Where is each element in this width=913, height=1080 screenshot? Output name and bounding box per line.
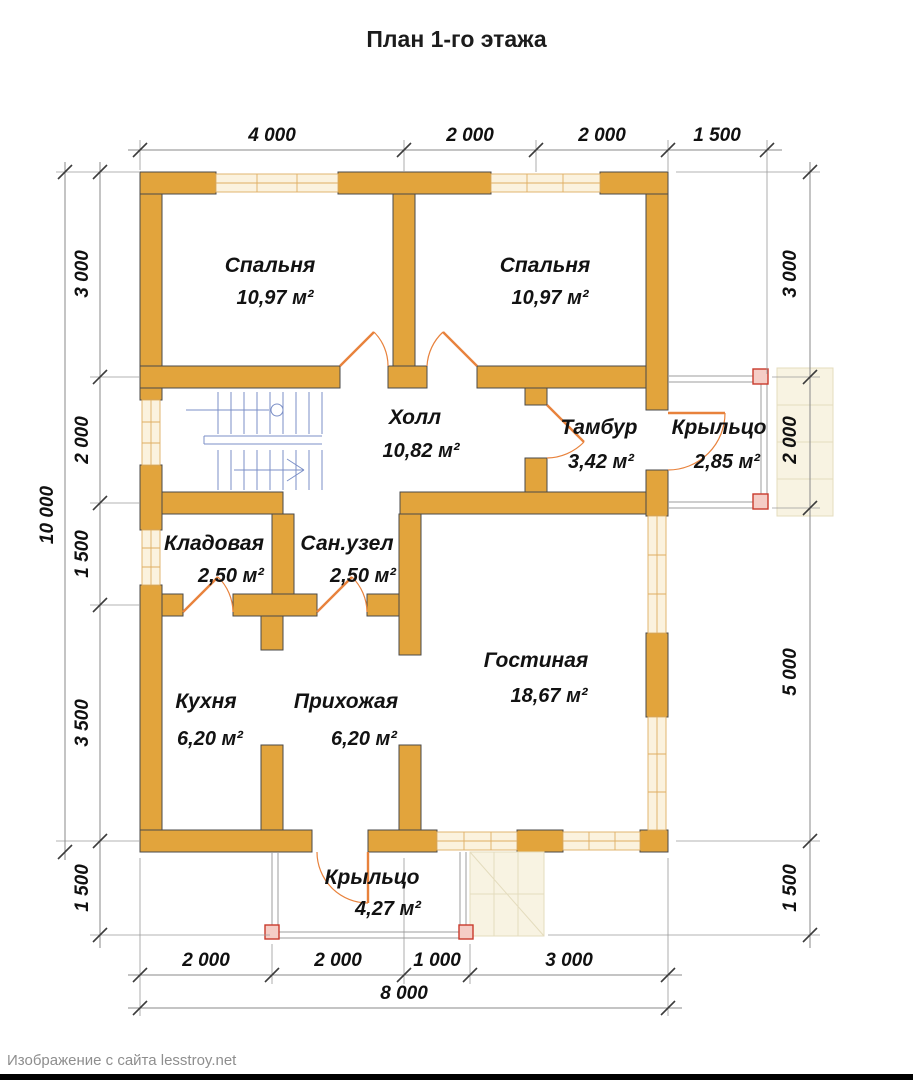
porch-post: [753, 494, 768, 509]
dimensions-right: 3 000 2 000 5 000 1 500: [548, 162, 820, 948]
room-label-hall: Холл 10,82 м²: [382, 406, 460, 462]
room-label-storage: Кладовая 2,50 м²: [164, 532, 265, 587]
wall-segment: [368, 830, 437, 852]
wall-segment: [646, 194, 668, 410]
wall-segment: [399, 514, 421, 655]
room-label-entry: Прихожая 6,20 м²: [294, 690, 398, 750]
window: [563, 832, 640, 850]
dim-label: 1 500: [780, 864, 801, 912]
room-name: Спальня: [225, 254, 316, 277]
porch-post: [753, 369, 768, 384]
window: [491, 174, 600, 192]
dim-label: 3 000: [545, 950, 593, 971]
dim-label: 1 500: [72, 530, 93, 578]
room-label-bedroom-left: Спальня 10,97 м²: [225, 254, 316, 309]
room-area: 6,20 м²: [331, 728, 398, 750]
dim-label-total: 8 000: [380, 983, 428, 1004]
room-area: 2,50 м²: [197, 565, 265, 587]
window: [437, 832, 517, 850]
wall-segment: [600, 172, 668, 194]
wall-segment: [400, 492, 646, 514]
room-area: 4,27 м²: [354, 898, 422, 920]
dim-label: 2 000: [72, 416, 93, 465]
dim-label: 1 500: [72, 864, 93, 912]
floor-plan-drawing: 4 000 2 000 2 000 1 500 3 000 2 000 1 50…: [0, 0, 913, 1080]
room-label-kitchen: Кухня 6,20 м²: [175, 690, 244, 750]
wall-segment: [477, 366, 646, 388]
dim-label-total: 10 000: [37, 486, 58, 545]
wall-segment: [162, 594, 183, 616]
wall-segment: [517, 830, 563, 852]
window: [216, 174, 338, 192]
dim-label: 3 000: [780, 250, 801, 298]
wall-segment: [646, 633, 668, 717]
porch-post: [459, 925, 473, 939]
room-name: Тамбур: [560, 416, 637, 439]
wall-segment: [399, 745, 421, 830]
room-name: Кухня: [175, 690, 236, 713]
wall-segment: [261, 616, 283, 650]
stairs-icon: [186, 392, 322, 490]
wall-segment: [640, 830, 668, 852]
wall-segment: [261, 745, 283, 830]
room-name: Крыльцо: [672, 416, 767, 439]
room-label-porch-bottom: Крыльцо 4,27 м²: [325, 866, 423, 920]
room-name: Холл: [388, 406, 441, 429]
room-name: Прихожая: [294, 690, 398, 713]
wall-segment: [393, 194, 415, 366]
dim-label: 4 000: [247, 125, 296, 146]
dim-label: 2 000: [313, 950, 362, 971]
dim-label: 2 000: [181, 950, 230, 971]
room-area: 10,82 м²: [382, 440, 460, 462]
room-area: 6,20 м²: [177, 728, 244, 750]
window: [142, 530, 160, 585]
room-label-porch-right: Крыльцо 2,85 м²: [672, 416, 767, 473]
floor-plan-page: План 1-го этажа: [0, 0, 913, 1080]
room-name: Кладовая: [164, 532, 264, 555]
wall-segment: [646, 470, 668, 516]
wall-segment: [272, 514, 294, 594]
wall-segment: [140, 585, 162, 830]
wall-segment: [525, 388, 547, 405]
wall-segment: [140, 366, 340, 388]
wall-segment: [233, 594, 317, 616]
dimensions-top: 4 000 2 000 2 000 1 500: [128, 125, 782, 374]
dim-label: 2 000: [445, 125, 494, 146]
door-swing: [340, 332, 388, 366]
dim-label: 5 000: [780, 648, 801, 696]
dim-label: 2 000: [780, 416, 801, 465]
room-name: Крыльцо: [325, 866, 420, 889]
room-label-bathroom: Сан.узел 2,50 м²: [300, 532, 397, 587]
footer-bar: [0, 1074, 913, 1080]
room-label-tambour: Тамбур 3,42 м²: [560, 416, 637, 473]
porch-post: [265, 925, 279, 939]
room-area: 18,67 м²: [510, 685, 588, 707]
dim-label: 2 000: [577, 125, 626, 146]
room-area: 2,85 м²: [693, 451, 761, 473]
room-name: Спальня: [500, 254, 591, 277]
wall-segment: [367, 594, 399, 616]
room-label-bedroom-right: Спальня 10,97 м²: [500, 254, 591, 309]
dim-label: 1 000: [413, 950, 461, 971]
window: [648, 516, 666, 633]
wall-segment: [140, 172, 216, 194]
room-area: 10,97 м²: [236, 287, 314, 309]
wall-segment: [140, 465, 162, 530]
watermark-text: Изображение с сайта lesstroy.net: [7, 1052, 236, 1069]
dim-label: 3 500: [72, 699, 93, 747]
room-name: Гостиная: [484, 649, 589, 672]
dim-label: 1 500: [693, 125, 741, 146]
wall-segment: [140, 830, 312, 852]
wall-segment: [388, 366, 427, 388]
door-swing: [427, 332, 477, 366]
room-name: Сан.узел: [300, 532, 393, 555]
wall-segment: [162, 492, 283, 514]
window: [648, 717, 666, 830]
room-area: 2,50 м²: [329, 565, 397, 587]
room-area: 3,42 м²: [568, 451, 635, 473]
dim-label: 3 000: [72, 250, 93, 298]
room-area: 10,97 м²: [511, 287, 589, 309]
wall-segment: [338, 172, 491, 194]
porch-right-outline: [668, 368, 833, 516]
window: [142, 400, 160, 465]
room-label-living: Гостиная 18,67 м²: [484, 649, 589, 707]
